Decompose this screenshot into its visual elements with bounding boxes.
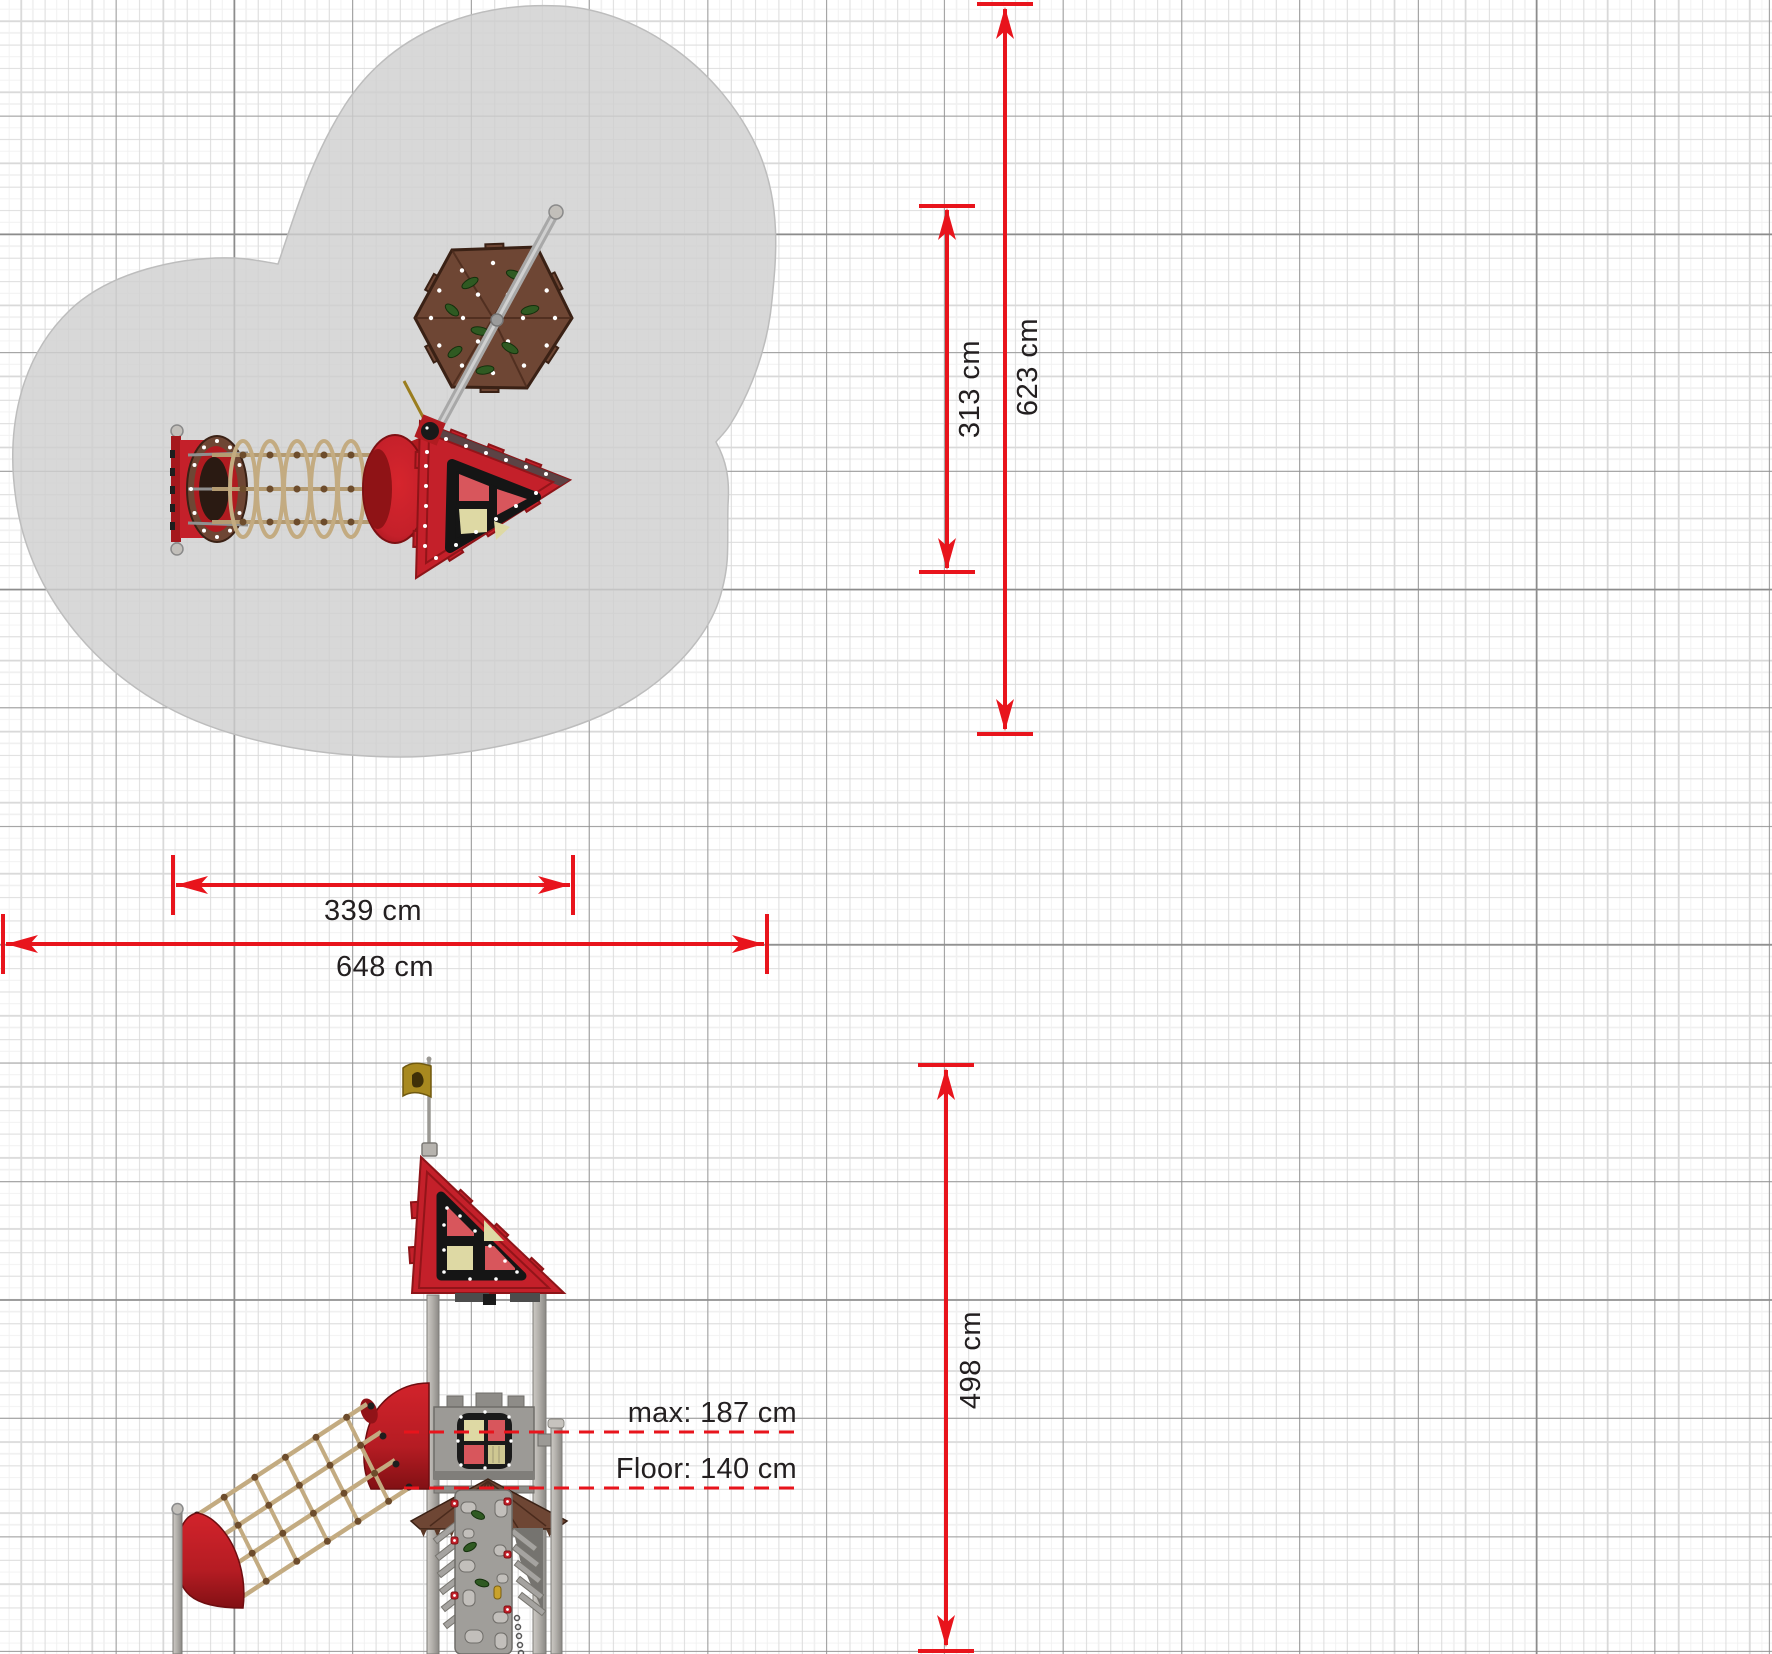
dim-label-313: 313 cm xyxy=(952,324,988,454)
annotation-max-height: max: 187 cm xyxy=(497,1396,797,1430)
drawing-layer xyxy=(0,0,1772,1654)
elevation-view xyxy=(172,1057,567,1654)
plan-view xyxy=(13,6,776,757)
dim-label-648: 648 cm xyxy=(305,949,465,985)
annotation-floor-height: Floor: 140 cm xyxy=(497,1452,797,1486)
chain xyxy=(515,1616,524,1654)
dim-label-623: 623 cm xyxy=(1010,302,1046,432)
dim-label-498: 498 cm xyxy=(953,1295,989,1425)
safety-zone-outline xyxy=(13,6,776,757)
elevation-tower-roof xyxy=(409,1157,564,1305)
plan-rope-tunnel xyxy=(212,441,372,537)
elevation-pole-left xyxy=(172,1504,183,1654)
playground-technical-drawing: 313 cm 623 cm 339 cm 648 cm 498 cm max: … xyxy=(0,0,1772,1654)
elevation-slide-dome-upper xyxy=(357,1383,429,1489)
panel-handle xyxy=(494,1586,501,1599)
elevation-flag xyxy=(403,1057,437,1157)
dim-label-339: 339 cm xyxy=(293,893,453,929)
